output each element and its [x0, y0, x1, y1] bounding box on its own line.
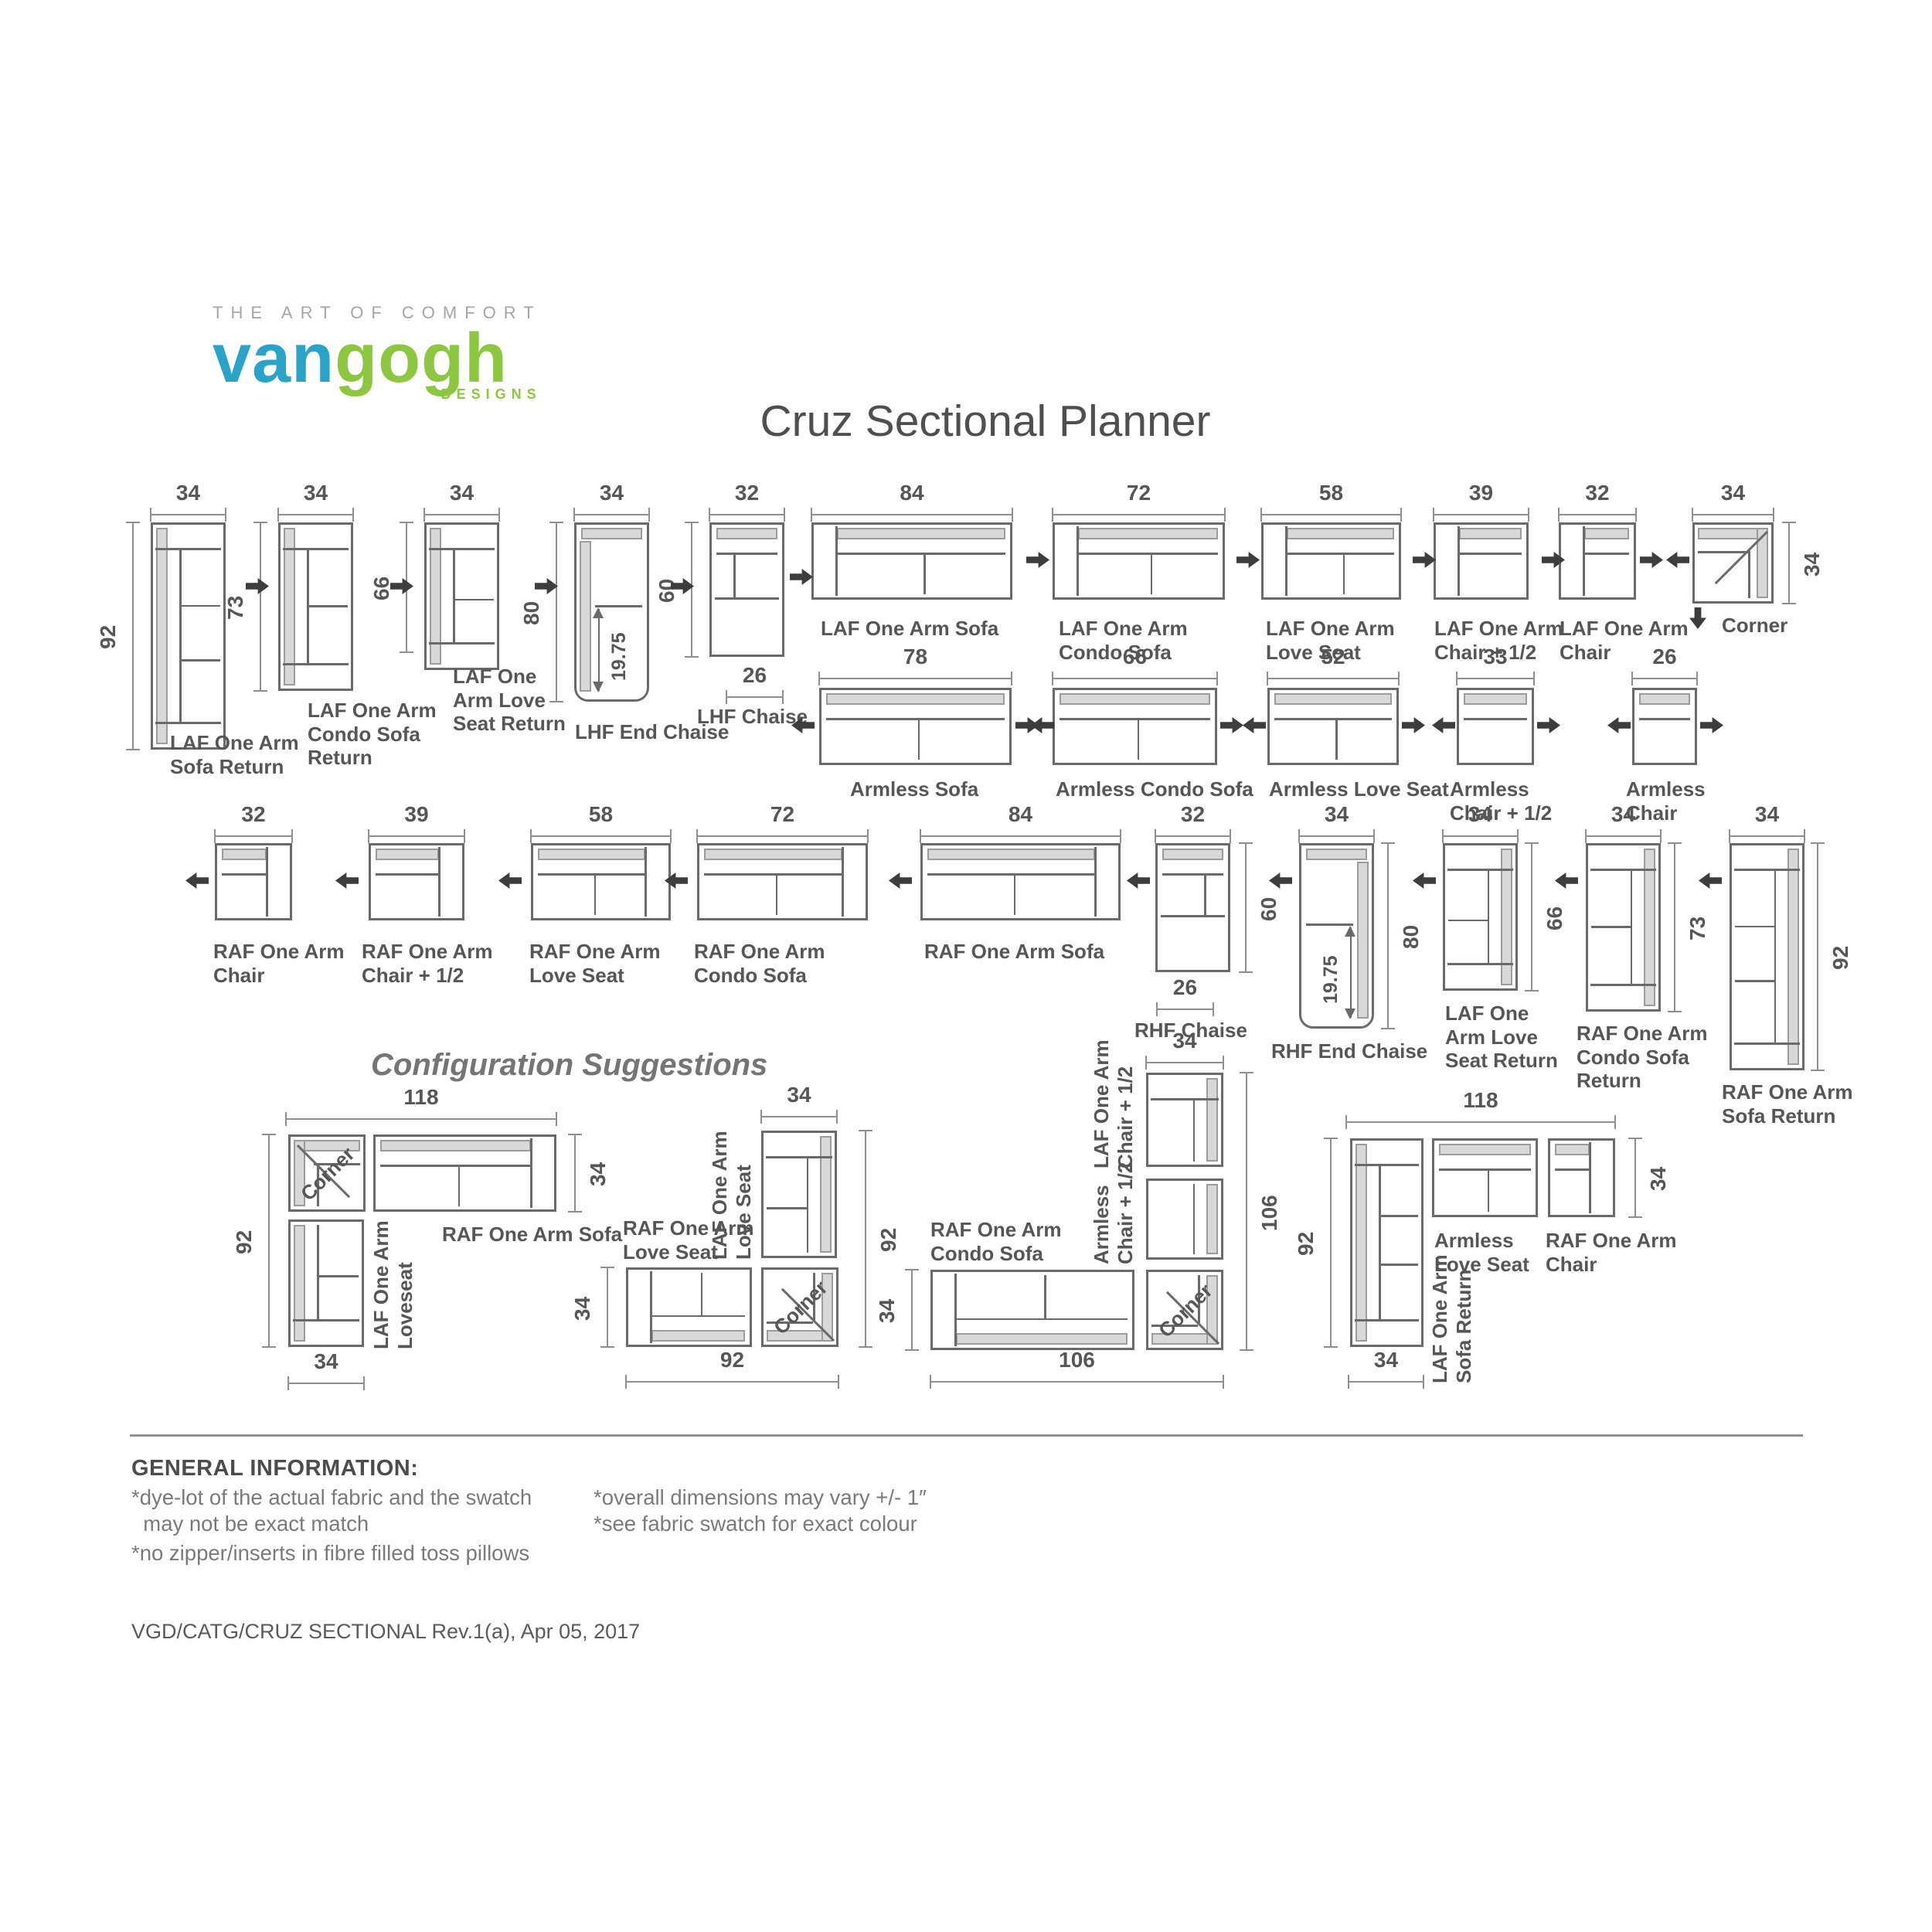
dimension-label: 72: [1093, 481, 1185, 505]
edge-line: [1285, 526, 1287, 596]
back-cushion-band: [284, 528, 295, 685]
edge-line: [1380, 1215, 1418, 1217]
dimension-tick: [709, 508, 710, 522]
edge-line: [1151, 1098, 1219, 1100]
dimension-tick: [368, 829, 369, 843]
dimension-tick: [1533, 672, 1535, 685]
dimension-label: 84: [975, 802, 1067, 827]
dimension-tick: [625, 1375, 627, 1389]
dimension-tick: [1120, 829, 1121, 843]
edge-line: [715, 597, 779, 600]
dimension-tick: [363, 1376, 365, 1390]
edge-line: [767, 1207, 807, 1209]
dimension-label: 60: [655, 579, 679, 603]
dimension-line: [709, 514, 784, 515]
dimension-label: 80: [1399, 925, 1423, 949]
dimension-label: 34: [1800, 552, 1825, 576]
back-cushion-band: [1644, 849, 1655, 1006]
edge-line: [1343, 553, 1345, 594]
dimension-tick: [726, 690, 727, 704]
dimension-tick: [464, 829, 465, 843]
piece-label-cfg3-armless-chair-half: ArmlessChair + 1/2: [1090, 1162, 1137, 1264]
dimension-label: 118: [375, 1085, 468, 1110]
dimension-tick: [498, 508, 500, 522]
edge-line: [1590, 869, 1656, 871]
edge-line: [458, 1165, 461, 1206]
dimension-label: 34: [270, 481, 362, 505]
dimension-tick: [1773, 508, 1774, 522]
back-cushion-band: [581, 528, 642, 539]
dimension-tick: [530, 829, 532, 843]
piece-cfg3-laf-chair-half: [1146, 1073, 1223, 1167]
dimension-label: 73: [1685, 917, 1710, 940]
dimension-line: [1788, 522, 1790, 604]
edge-line: [1193, 1100, 1196, 1162]
dimension-label: 39: [1435, 481, 1528, 505]
dimension-label: 34: [1434, 802, 1527, 827]
dimension-line: [1146, 1062, 1223, 1063]
edge-line: [1448, 920, 1488, 922]
edge-line: [429, 548, 495, 550]
edge-line: [1583, 526, 1585, 596]
edge-line: [293, 1319, 359, 1321]
dimension-label: 106: [1031, 1348, 1124, 1372]
edge-line: [704, 873, 842, 876]
dimension-label: 92: [686, 1348, 779, 1372]
dimension-line: [1443, 835, 1518, 837]
piece-label-armless-sofa: Armless Sofa: [850, 777, 978, 801]
piece-label-cfg4-raf-chair: RAF One ArmChair: [1546, 1229, 1677, 1276]
dimension-tick: [1345, 1115, 1347, 1129]
edge-line: [1555, 1168, 1590, 1171]
dimension-line: [151, 514, 226, 515]
dimension-line: [1632, 678, 1697, 679]
dimension-tick: [905, 1349, 919, 1351]
page-title: Cruz Sectional Planner: [730, 396, 1240, 447]
arrowhead-down-icon: [1345, 1009, 1355, 1019]
dimension-tick: [1155, 829, 1156, 843]
dimension-tick: [1260, 508, 1262, 522]
dimension-label: 34: [1340, 1348, 1433, 1372]
dimension-label: 66: [1543, 906, 1567, 930]
edge-line: [835, 526, 838, 596]
edge-line: [222, 873, 267, 876]
dimension-tick: [126, 522, 140, 523]
dimension-label: 72: [736, 802, 829, 827]
dimension-tick: [1631, 672, 1633, 685]
dimension-tick: [1398, 672, 1400, 685]
edge-line: [1060, 718, 1210, 720]
dimension-line: [1299, 835, 1374, 837]
dimension-tick: [549, 701, 563, 702]
dimension-line: [531, 835, 671, 837]
flow-arrow-left-icon: [1127, 872, 1150, 889]
back-cushion-band: [1206, 1184, 1218, 1254]
dimension-line: [1692, 514, 1774, 515]
piece-rhf-chaise: [1155, 843, 1230, 972]
dimension-tick: [1811, 1070, 1825, 1071]
edge-line: [283, 663, 349, 665]
flow-arrow-right-icon: [1220, 717, 1243, 733]
piece-label-cfg4-armless-love-seat: ArmlessLove Seat: [1434, 1229, 1529, 1276]
flow-arrow-right-icon: [790, 569, 813, 585]
back-cushion-band: [1555, 1144, 1590, 1155]
edge-line: [283, 548, 349, 550]
edge-line: [1734, 869, 1800, 871]
dimension-tick: [836, 1110, 838, 1124]
dimension-label: 60: [1257, 896, 1281, 920]
edge-line: [645, 847, 647, 917]
dimension-label: 58: [555, 802, 648, 827]
edge-line: [1447, 963, 1513, 965]
dimension-tick: [670, 829, 672, 843]
dimension-label: 32: [701, 481, 794, 505]
edge-line: [1138, 718, 1140, 760]
dimension-tick: [1811, 842, 1825, 844]
piece-label-laf-one-arm-love-seat-return: LAF OneArm LoveSeat Return: [453, 665, 566, 736]
flow-arrow-right-icon: [1026, 552, 1049, 568]
dimension-label: 34: [416, 481, 509, 505]
edge-line: [733, 553, 736, 597]
edge-line: [1748, 551, 1750, 598]
dimension-line: [1674, 843, 1675, 1012]
back-cushion-band: [826, 693, 1005, 705]
edge-line: [1355, 1319, 1419, 1321]
edge-line: [1459, 553, 1522, 555]
piece-cfg4-raf-chair: [1548, 1138, 1615, 1217]
dimension-tick: [1525, 990, 1539, 992]
dimension-tick: [400, 651, 413, 653]
dimension-label: 34: [875, 1299, 900, 1323]
edge-line: [181, 605, 220, 607]
dimension-tick: [1373, 829, 1375, 843]
piece-laf-one-arm-love-seat: [1261, 522, 1401, 600]
dimension-tick: [1240, 1349, 1253, 1351]
dimension-line: [1817, 843, 1818, 1070]
dimension-tick: [568, 1134, 582, 1135]
back-cushion-band: [1787, 849, 1799, 1065]
piece-cfg1-raf-sofa: [373, 1134, 556, 1212]
back-cushion-band: [1355, 1144, 1367, 1342]
dimension-tick: [760, 1110, 762, 1124]
edge-line: [766, 1156, 832, 1158]
dimension-line: [1261, 514, 1401, 515]
flow-arrow-right-icon: [1236, 552, 1260, 568]
edge-line: [1488, 1168, 1490, 1212]
dimension-line: [278, 514, 353, 515]
dimension-tick: [1381, 842, 1395, 844]
piece-label-raf-one-arm-chair: RAF One ArmChair: [213, 940, 345, 987]
dimension-line: [1349, 1381, 1423, 1383]
dimension-label: 32: [1551, 481, 1644, 505]
edge-line: [651, 1315, 745, 1318]
flow-arrow-left-icon: [498, 872, 522, 889]
edge-line: [1439, 1168, 1531, 1171]
dimension-tick: [225, 508, 226, 522]
dimension-tick: [1298, 829, 1300, 843]
dimension-label: 106: [1257, 1195, 1282, 1231]
back-cushion-band: [380, 1140, 531, 1151]
dimension-tick: [1442, 829, 1444, 843]
dimension-tick: [1423, 1375, 1424, 1389]
dimension-tick: [287, 1376, 289, 1390]
edge-line: [454, 599, 494, 601]
dimension-tick: [1011, 672, 1012, 685]
piece-cfg4-armless-love-seat: [1432, 1138, 1538, 1217]
dimension-label: 78: [869, 645, 962, 669]
dimension-tick: [214, 829, 216, 843]
dimension-tick: [818, 672, 820, 685]
piece-label-raf-one-arm-sofa-return: RAF One ArmSofa Return: [1722, 1080, 1853, 1128]
flow-arrow-right-icon: [1413, 552, 1436, 568]
back-cushion-band: [1639, 693, 1690, 705]
dimension-tick: [1525, 842, 1539, 844]
info-line: *no zipper/inserts in fibre filled toss …: [131, 1541, 529, 1566]
piece-label-cfg2-raf-love-seat: RAF One ArmLove Seat: [623, 1216, 754, 1264]
edge-line: [918, 718, 920, 760]
edge-line: [376, 873, 439, 876]
piece-label-cfg1-raf-sofa: RAF One Arm Sofa: [442, 1223, 622, 1247]
piece-armless-chair: [1632, 688, 1697, 765]
piece-corner: [1692, 522, 1774, 604]
dimension-tick: [1614, 1115, 1616, 1129]
back-cushion-band: [927, 849, 1095, 860]
dimension-tick: [262, 1134, 276, 1135]
dimension-line: [1330, 1138, 1332, 1347]
dimension-line: [626, 1381, 838, 1383]
dimension-line: [865, 1131, 866, 1347]
piece-label-cfg1-laf-loveseat: LAF One ArmLoveseat: [369, 1220, 417, 1349]
back-cushion-band: [1357, 862, 1369, 1019]
dimension-tick: [1324, 1346, 1338, 1348]
dimension-tick: [1381, 1028, 1395, 1029]
dimension-tick: [291, 829, 293, 843]
dimension-tick: [1052, 672, 1053, 685]
piece-cfg2-raf-love-seat: [626, 1267, 752, 1347]
dimension-tick: [1668, 842, 1682, 844]
edge-line: [1464, 718, 1527, 720]
back-cushion-band: [1439, 1144, 1531, 1155]
flow-arrow-left-icon: [1666, 552, 1689, 568]
piece-cfg1-laf-loveseat: [288, 1219, 364, 1347]
dimension-line: [424, 514, 499, 515]
flow-arrow-left-icon: [1432, 717, 1455, 733]
edge-line: [923, 553, 926, 594]
dimension-tick: [1267, 672, 1268, 685]
piece-label-raf-one-arm-chair-half: RAF One ArmChair + 1/2: [362, 940, 493, 987]
dimension-label: 92: [1294, 1232, 1318, 1256]
back-cushion-band: [1459, 528, 1522, 539]
dimension-label: 39: [370, 802, 463, 827]
document-revision-footer: VGD/CATG/CRUZ SECTIONAL Rev.1(a), Apr 05…: [131, 1620, 640, 1644]
dimension-line: [1267, 678, 1399, 679]
inner-dimension-arrow: [598, 609, 600, 691]
piece-label-raf-one-arm-condo-sofa-return: RAF One ArmCondo SofaReturn: [1577, 1022, 1708, 1093]
back-cushion-band: [1306, 849, 1367, 860]
dimension-tick: [285, 1112, 287, 1126]
edge-line: [1044, 1275, 1046, 1320]
dimension-label: 34: [1291, 802, 1383, 827]
dimension-label: 92: [96, 625, 121, 649]
dimension-tick: [1240, 1072, 1253, 1073]
back-cushion-band: [580, 541, 591, 692]
edge-line: [181, 659, 220, 662]
dimension-tick: [1558, 508, 1560, 522]
info-line: *see fabric swatch for exact colour: [594, 1512, 917, 1536]
piece-armless-love-seat: [1267, 688, 1399, 765]
dimension-tick: [1230, 829, 1231, 843]
dimension-label: 34: [1646, 1167, 1671, 1191]
dimension-tick: [1696, 672, 1698, 685]
dimension-label: 26: [709, 663, 801, 688]
dimension-line: [920, 835, 1121, 837]
dimension-tick: [253, 690, 267, 692]
info-line: *dye-lot of the actual fabric and the sw…: [131, 1485, 532, 1510]
dimension-tick: [1216, 672, 1218, 685]
edge-line: [1193, 1184, 1196, 1254]
back-cushion-band: [1464, 693, 1527, 705]
back-cushion-band: [956, 1333, 1128, 1345]
piece-label-laf-one-arm-love-seat-return-2: LAF OneArm LoveSeat Return: [1445, 1002, 1558, 1073]
edge-line: [1274, 718, 1392, 720]
dimension-label: 19.75: [608, 632, 631, 681]
edge-line: [1590, 984, 1656, 986]
dimension-line: [697, 835, 868, 837]
piece-laf-one-arm-sofa-return: [151, 522, 226, 750]
edge-line: [317, 1225, 319, 1320]
dimension-label: 34: [1721, 802, 1814, 827]
dimension-line: [1245, 843, 1247, 972]
dimension-tick: [352, 508, 354, 522]
back-cushion-band: [1162, 849, 1223, 860]
dimension-label: 92: [876, 1228, 901, 1252]
flow-arrow-left-icon: [185, 872, 209, 889]
dimension-tick: [859, 1346, 872, 1348]
flow-arrow-right-icon: [1537, 717, 1560, 733]
dimension-line: [911, 1270, 913, 1350]
dimension-tick: [573, 508, 575, 522]
dimension-label: 34: [280, 1349, 372, 1374]
piece-cfg3-raf-condo-sofa: [930, 1270, 1134, 1350]
flow-arrow-left-icon: [335, 872, 359, 889]
dimension-line: [1586, 835, 1661, 837]
edge-line: [1094, 847, 1097, 917]
dimension-tick: [867, 829, 869, 843]
piece-label-raf-one-arm-love-seat: RAF One ArmLove Seat: [529, 940, 661, 987]
edge-line: [429, 642, 495, 645]
edge-line: [438, 847, 440, 917]
dimension-line: [1157, 1009, 1213, 1010]
edge-line: [380, 1165, 531, 1167]
dimension-line: [215, 835, 292, 837]
back-cushion-band: [837, 528, 1005, 539]
edge-line: [179, 549, 182, 723]
piece-cfg4-laf-sofa-return: [1350, 1138, 1423, 1347]
dimension-line: [268, 1134, 270, 1347]
dimension-tick: [859, 1130, 872, 1131]
piece-armless-condo-sofa: [1053, 688, 1217, 765]
edge-line: [1584, 553, 1629, 555]
edge-line: [1488, 870, 1490, 964]
edge-line: [716, 553, 777, 555]
edge-line: [1355, 1164, 1419, 1166]
dimension-tick: [1433, 508, 1434, 522]
piece-label-rhf-end-chaise: RHF End Chaise: [1271, 1039, 1427, 1063]
dimension-tick: [1668, 1011, 1682, 1012]
piece-raf-one-arm-sofa: [920, 843, 1121, 920]
edge-line: [1639, 718, 1690, 720]
dimension-line: [288, 1383, 364, 1384]
piece-label-raf-one-arm-sofa: RAF One Arm Sofa: [924, 940, 1104, 964]
piece-laf-one-arm-love-seat-return: [424, 522, 499, 670]
dimension-tick: [685, 656, 699, 658]
edge-line: [1161, 915, 1225, 917]
dimension-tick: [549, 522, 563, 523]
dimension-label: 32: [207, 802, 300, 827]
dimension-line: [1346, 1121, 1615, 1123]
dimension-label: 34: [142, 481, 235, 505]
arrowhead-up-icon: [593, 607, 604, 618]
dimension-line: [811, 514, 1012, 515]
dimension-line: [1246, 1073, 1247, 1350]
dimension-label: 34: [586, 1162, 611, 1186]
edge-line: [155, 548, 221, 550]
edge-line: [954, 1274, 957, 1346]
dimension-label: 66: [1089, 645, 1182, 669]
edge-line: [650, 1271, 652, 1343]
divider-rule: [130, 1434, 1803, 1437]
edge-line: [1589, 1142, 1591, 1213]
dimension-tick: [1224, 508, 1226, 522]
dimension-tick: [1456, 672, 1458, 685]
dimension-tick: [920, 829, 921, 843]
dimension-label: 58: [1285, 481, 1378, 505]
dimension-tick: [600, 1267, 614, 1268]
dimension-tick: [784, 508, 785, 522]
edge-line: [266, 847, 268, 917]
dimension-line: [1053, 514, 1225, 515]
piece-laf-one-arm-chair: [1559, 522, 1636, 600]
dimension-label: 34: [570, 1296, 595, 1320]
piece-label-cfg3-laf-chair-half: LAF One ArmChair + 1/2: [1090, 1039, 1137, 1168]
dimension-tick: [1628, 1216, 1642, 1218]
dimension-tick: [782, 690, 784, 704]
dimension-line: [132, 522, 134, 750]
edge-line: [1162, 873, 1223, 876]
dimension-tick: [1782, 603, 1796, 604]
dimension-line: [607, 1267, 608, 1347]
dimension-tick: [905, 1269, 919, 1270]
dimension-tick: [1156, 1002, 1158, 1016]
edge-line: [1287, 553, 1394, 555]
dimension-tick: [423, 508, 425, 522]
dimension-tick: [1239, 971, 1253, 973]
info-line: may not be exact match: [131, 1512, 369, 1536]
dimension-line: [1730, 835, 1804, 837]
edge-line: [1735, 926, 1774, 928]
flow-arrow-right-icon: [1700, 717, 1723, 733]
dimension-tick: [556, 1112, 557, 1126]
dimension-label: 73: [223, 596, 248, 620]
dimension-line: [260, 522, 261, 691]
logo-brand-van: van: [213, 320, 335, 397]
piece-label-laf-one-arm-condo-sofa-return: LAF One ArmCondo SofaReturn: [308, 699, 437, 770]
dimension-line: [369, 835, 464, 837]
dimension-line: [574, 1134, 576, 1212]
edge-line: [1774, 870, 1777, 1043]
dimension-line: [574, 514, 649, 515]
back-cushion-band: [820, 1136, 832, 1253]
